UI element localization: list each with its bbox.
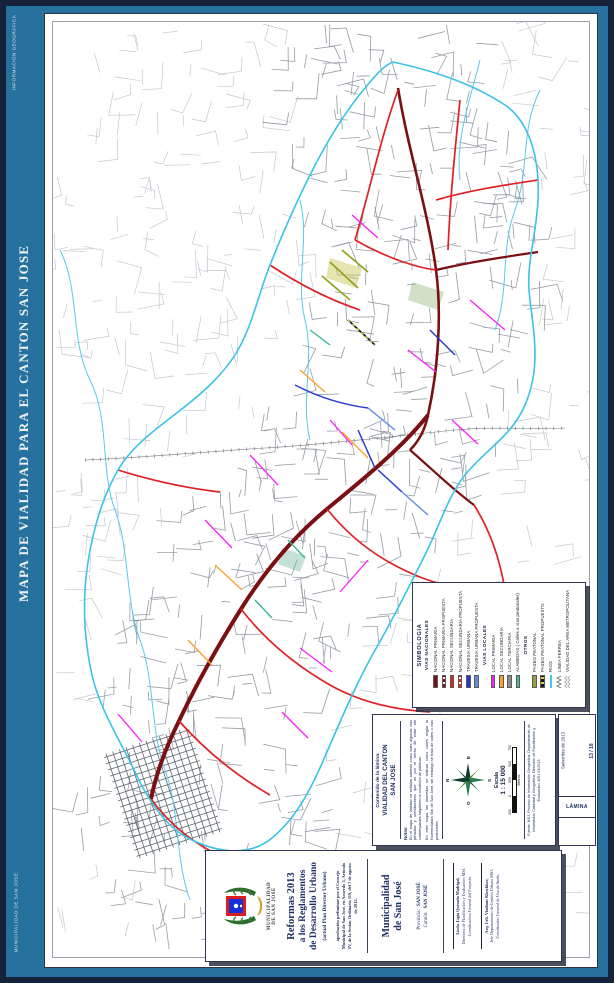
legend-swatch	[516, 675, 520, 688]
legend-item: VIALIDAD DEL AREA METROPOLITANA	[563, 583, 571, 707]
signature-block-1: Licda. Ligia Quesada Madrigal, Directora…	[453, 857, 473, 955]
legend-item: LOCAL PRIMARIA	[489, 583, 497, 707]
legend-swatch	[507, 675, 511, 688]
legend-item: LOCAL TERCIARIA	[506, 583, 514, 707]
divider	[524, 721, 525, 839]
notas-label: Notas:	[403, 720, 408, 840]
legend-item-label: NACIONAL PRIMARIA PROPUESTA	[441, 598, 446, 672]
muni-line1: Municipalidad	[381, 857, 393, 955]
scale-bar	[512, 747, 517, 813]
legend-item: NACIONAL SECUNDARIA PROPUESTA	[456, 583, 464, 707]
legend-swatch	[474, 675, 478, 688]
legend-group-heading: OTROS	[524, 583, 529, 707]
legend-item: NACIONAL SECUNDARIA	[448, 583, 456, 707]
approval-text: aprobación preliminar por el Concejo Mun…	[335, 862, 359, 950]
scalebar-tick: 250	[508, 804, 512, 820]
lamina-label-cell: LÁMINA	[559, 796, 595, 818]
coat-of-arms-icon	[216, 884, 262, 928]
scalebar-ticks: 2500250500750	[508, 740, 512, 820]
legend-swatch	[433, 675, 437, 688]
compass-star	[450, 762, 486, 798]
compass-o: O	[466, 801, 471, 805]
legend-title: SIMBOLOGIA	[417, 583, 423, 707]
lamina-date: Setiembre de 2013	[561, 711, 566, 791]
lamina-panel: 13 / 18 Setiembre de 2013 LÁMINA	[558, 714, 596, 846]
legend-swatch	[442, 675, 446, 688]
legend-item: ALAMEDAS ( Calles o vías peatonales)	[514, 583, 522, 707]
sig2-extra: Coordinador General de Uso de Suelo.	[495, 857, 501, 955]
legend-item: LOCAL SECUNDARIA	[497, 583, 505, 707]
legend-swatch	[450, 675, 454, 688]
scalebar-tick: 750	[508, 740, 512, 756]
org-name-line2: DE SAN JOSÉ	[272, 857, 277, 955]
escala-value: 1 : 15 000	[500, 720, 507, 840]
legend-swatch	[549, 675, 553, 688]
map-sheet-title: MAPA DE VIALIDAD PARA EL CANTON SAN JOSE	[16, 262, 32, 602]
muni-line2: de San José	[393, 857, 405, 955]
compass-rose: N S E O	[445, 754, 493, 806]
legend-item: TRAVESIA URBANA	[464, 583, 472, 707]
compass-e: E	[466, 756, 471, 759]
legend-item: PASEO PEATONAL	[530, 583, 538, 707]
scale-bar-segment	[513, 748, 516, 764]
scale-bar-segment	[513, 796, 516, 812]
legend-item: NACIONAL PRIMARIA PROPUESTA	[440, 583, 448, 707]
compass-s: S	[487, 779, 492, 782]
legend-item-label: NACIONAL SECUNDARIA	[449, 619, 454, 672]
legend-item-label: LOCAL PRIMARIA	[491, 635, 496, 672]
legend-item-label: PASEO PEATONAL	[532, 632, 537, 672]
legend-swatch	[557, 675, 561, 688]
divider	[400, 721, 401, 839]
legend-item-label: PASEO PEATONAL PROPUESTO	[540, 603, 545, 672]
scale-bar-segment	[513, 764, 516, 780]
nota-1: En el mapa de vialidad se señalan además…	[409, 720, 424, 840]
divider	[443, 859, 444, 953]
scale-bar-segment	[513, 780, 516, 796]
legend-item-label: NACIONAL SECUNDARIA PROPUESTA	[458, 591, 463, 672]
scalebar-tick: 0	[508, 788, 512, 804]
legend-item-label: TRAVESIA URBANA PROPUESTA	[474, 603, 479, 672]
legend-item: RIOS	[547, 583, 555, 707]
nota-2: En este mapa las alamedas se indican com…	[425, 720, 440, 840]
signature-line	[453, 863, 454, 949]
legend-rows: VIAS NACIONALESNACIONAL PRIMARIANACIONAL…	[425, 583, 571, 707]
provincia-value: SAN JOSÉ	[417, 882, 422, 906]
fuente-text: Fuente: MSJ, Proceso de Información Geog…	[527, 720, 542, 840]
legend-panel: SIMBOLOGIA VIAS NACIONALESNACIONAL PRIMA…	[412, 582, 586, 708]
legend-group-heading: VIAS LOCALES	[483, 583, 488, 707]
legend-item-label: TRAVESIA URBANA	[466, 631, 471, 672]
doc-subtitle: (actual Plan Director Urbano)	[322, 857, 328, 955]
scalebar-tick: 500	[508, 756, 512, 772]
divider	[367, 859, 368, 953]
title-panel: MUNICIPALIDAD DE SAN JOSÉ Reformas 2013 …	[205, 850, 562, 962]
municipal-logo: MUNICIPALIDAD DE SAN JOSÉ	[216, 857, 277, 955]
sig1-extra: Coordinadora General del Proyecto.	[467, 857, 473, 955]
legend-item-label: LOCAL TERCIARIA	[507, 633, 512, 672]
contenido-value: VIALIDAD DEL CANTON SAN JOSE	[382, 738, 398, 822]
legend-item-label: VIALIDAD DEL AREA METROPOLITANA	[565, 590, 570, 672]
doc-title-line3: de Desarrollo Urbano	[309, 857, 320, 955]
legend-swatch	[466, 675, 470, 688]
doc-title-line2: a los Reglamentos	[298, 857, 309, 955]
legend-item: PASEO PEATONAL PROPUESTO	[539, 583, 547, 707]
contenido-label: Contenido de la lámina:	[376, 720, 381, 840]
lamina-number: 13 / 18	[589, 711, 595, 791]
legend-swatch	[499, 675, 503, 688]
legend-swatch	[491, 675, 495, 688]
info-panel: Contenido de la lámina: VIALIDAD DEL CAN…	[372, 714, 556, 846]
legend-item: TRAVESIA URBANA PROPUESTA	[472, 583, 480, 707]
legend-item-label: LOCAL SECUNDARIA	[499, 627, 504, 672]
legend-item-label: RIOS	[548, 661, 553, 672]
divider	[442, 721, 443, 839]
provincia-label: Provincia:	[417, 909, 422, 930]
canton-label: Cantón:	[424, 911, 429, 927]
legend-swatch	[565, 675, 569, 688]
legend-item: LINEA FERREA	[555, 583, 563, 707]
legend-item-label: NACIONAL PRIMARIA	[433, 627, 438, 672]
legend-swatch	[458, 675, 462, 688]
canton-value: SAN JOSÉ	[424, 885, 429, 909]
legend-group-heading: VIAS NACIONALES	[425, 583, 430, 707]
legend-item-label: LINEA FERREA	[557, 640, 562, 672]
strip-bottom-label: MUNICIPALIDAD DE SAN JOSÉ	[14, 853, 19, 973]
legend-swatch	[540, 675, 544, 688]
doc-title-line1: Reformas 2013	[286, 857, 298, 955]
signature-line	[481, 863, 482, 949]
scalebar-units: Metros	[517, 720, 521, 840]
signature-block-2: Arq. Urb. Vladimir Klotchkov, Jefe Depar…	[481, 857, 501, 955]
sig1-role: Directora de Planificación y Evaluación …	[461, 857, 467, 955]
strip-top-label: INFORMACIÓN GEOGRÁFICA	[12, 0, 17, 113]
legend-item-label: ALAMEDAS ( Calles o vías peatonales)	[515, 593, 520, 672]
scalebar-tick: 250	[508, 772, 512, 788]
lamina-label: LÁMINA	[566, 804, 588, 810]
legend-swatch	[532, 675, 536, 688]
legend-item: NACIONAL PRIMARIA	[432, 583, 440, 707]
